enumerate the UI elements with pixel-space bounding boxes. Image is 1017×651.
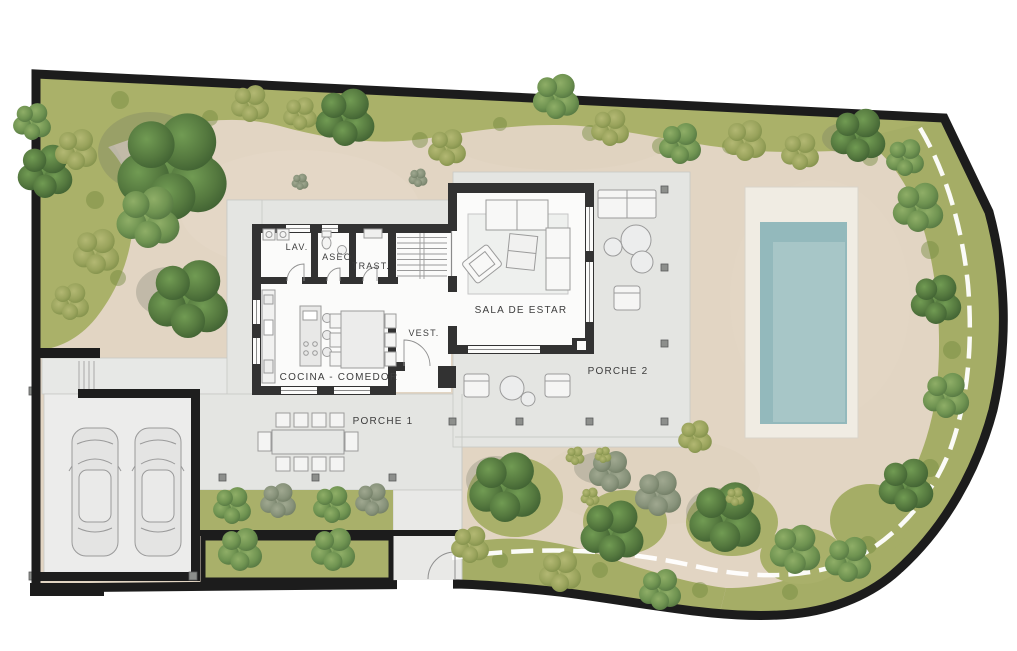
- label-cocina: COCINA - COMEDOR: [280, 372, 399, 383]
- pool-water-shallow: [773, 242, 845, 422]
- label-porche1: PORCHE 1: [353, 416, 414, 427]
- dining-table: [330, 311, 396, 368]
- label-porche2: PORCHE 2: [588, 366, 649, 377]
- garage-wall-bottom: [40, 572, 200, 581]
- site-plan-svg: LAV. ASEO TRAST. VEST. SALA DE ESTAR COC…: [0, 0, 1017, 651]
- label-vest: VEST.: [408, 328, 439, 338]
- garage-wall-top: [78, 389, 200, 398]
- label-lav: LAV.: [286, 242, 309, 252]
- label-sala: SALA DE ESTAR: [475, 305, 568, 316]
- gate-path-slab: [393, 490, 462, 585]
- storage-shelf: [364, 229, 382, 238]
- living-room-set: [461, 200, 570, 294]
- boundary-wall-stub: [38, 348, 100, 358]
- label-trast: TRAST.: [352, 261, 390, 271]
- swimming-pool: [745, 187, 858, 438]
- garage-wall-right: [191, 389, 200, 579]
- car: [69, 428, 121, 556]
- kitchen-counter: [262, 290, 275, 383]
- label-aseo: ASEO: [322, 252, 352, 262]
- boundary-corner-foot: [30, 583, 104, 596]
- floor-plan-page: LAV. ASEO TRAST. VEST. SALA DE ESTAR COC…: [0, 0, 1017, 651]
- garage: [40, 361, 200, 581]
- car: [132, 428, 184, 556]
